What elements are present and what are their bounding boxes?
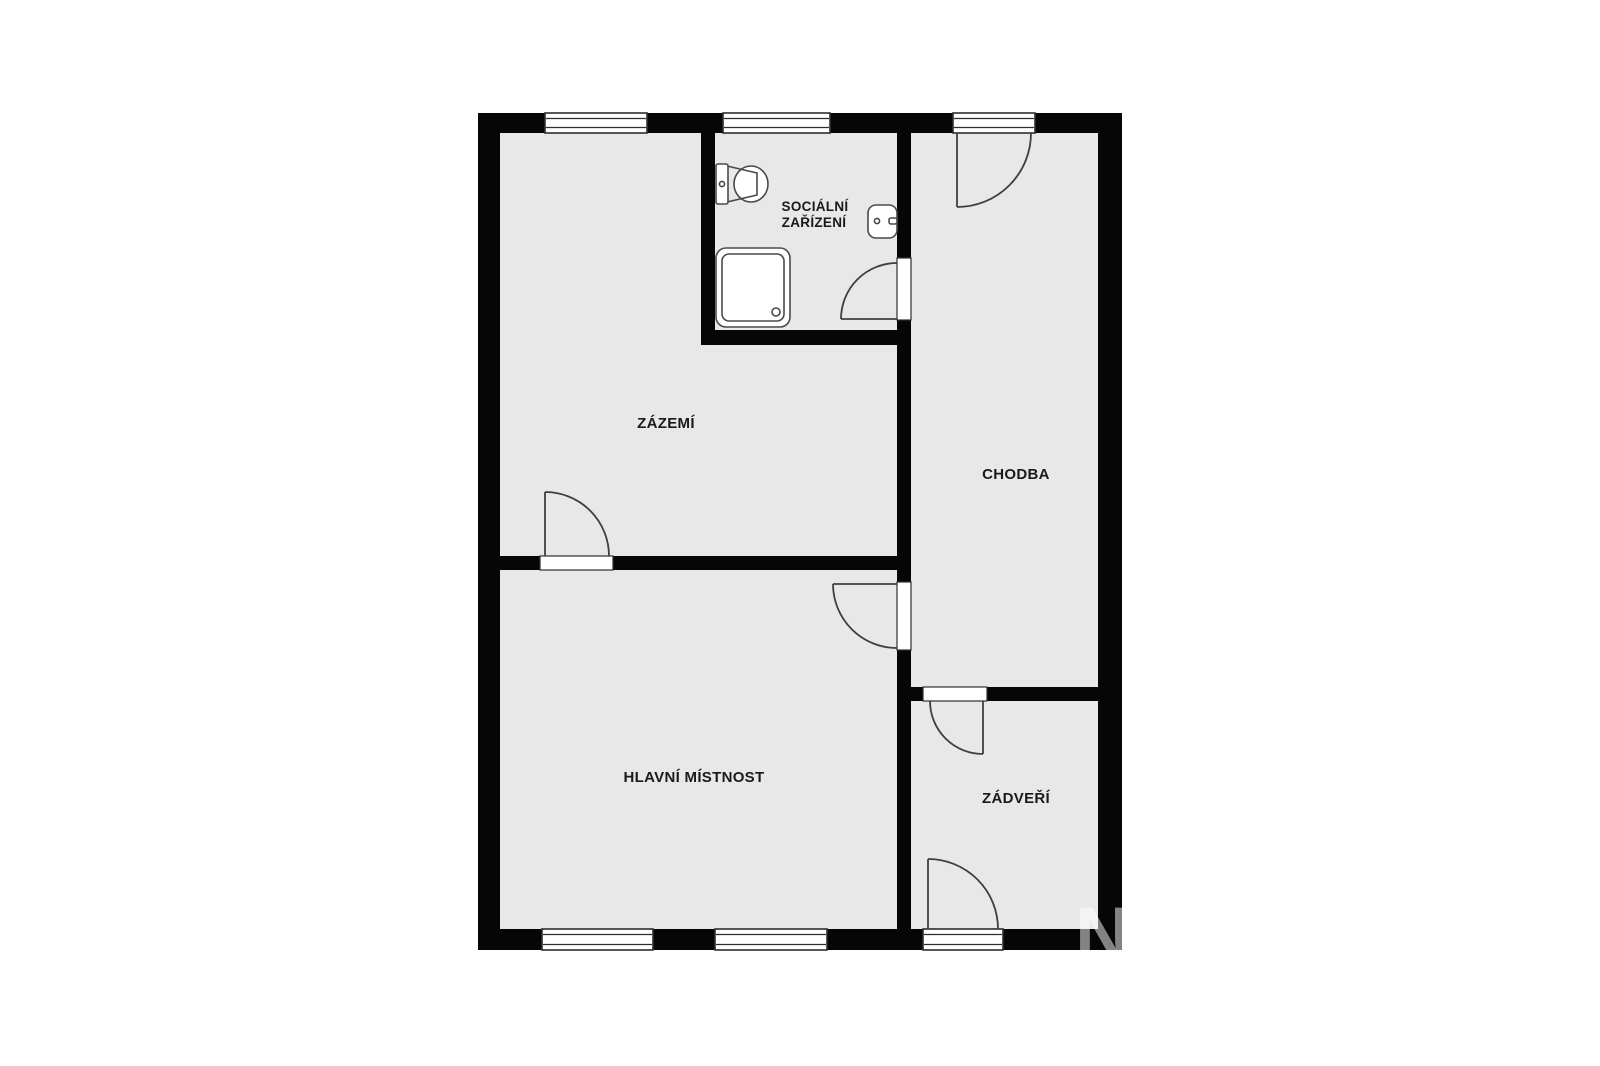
floor-plan: SOCIÁLNÍ ZAŘÍZENÍ ZÁZEMÍ CHODBA HLAVNÍ M…: [0, 0, 1600, 1066]
label-zadveri: ZÁDVEŘÍ: [982, 789, 1050, 807]
label-zazemi: ZÁZEMÍ: [637, 415, 695, 432]
entrance-door-opening: [923, 929, 1003, 950]
label-chodba: CHODBA: [982, 466, 1050, 483]
window-bottom-right: [715, 929, 827, 950]
window-top-bathroom: [723, 113, 830, 133]
door-opening-zazemi-hlavni: [540, 556, 613, 570]
window-top-zazemi: [545, 113, 647, 133]
room-zadveri-floor: [911, 701, 1098, 929]
sink-symbol: [868, 205, 897, 238]
room-chodba-floor: [911, 133, 1098, 687]
label-hlavni-mistnost: HLAVNÍ MÍSTNOST: [624, 769, 765, 786]
door-opening-bathroom: [897, 258, 911, 320]
door-opening-chodba-zadveri: [923, 687, 987, 701]
door-opening-chodba-top: [953, 113, 1035, 133]
label-socialni-zarizeni-line2: ZAŘÍZENÍ: [782, 215, 848, 230]
room-hlavni-mistnost-floor: [500, 570, 897, 929]
door-opening-hlavni-chodba: [897, 582, 911, 650]
label-socialni-zarizeni-line1: SOCIÁLNÍ: [782, 199, 850, 214]
shower-symbol: [716, 248, 790, 327]
toilet-symbol: [716, 164, 768, 204]
window-bottom-left: [542, 929, 653, 950]
watermark-letter: N: [1075, 892, 1130, 977]
